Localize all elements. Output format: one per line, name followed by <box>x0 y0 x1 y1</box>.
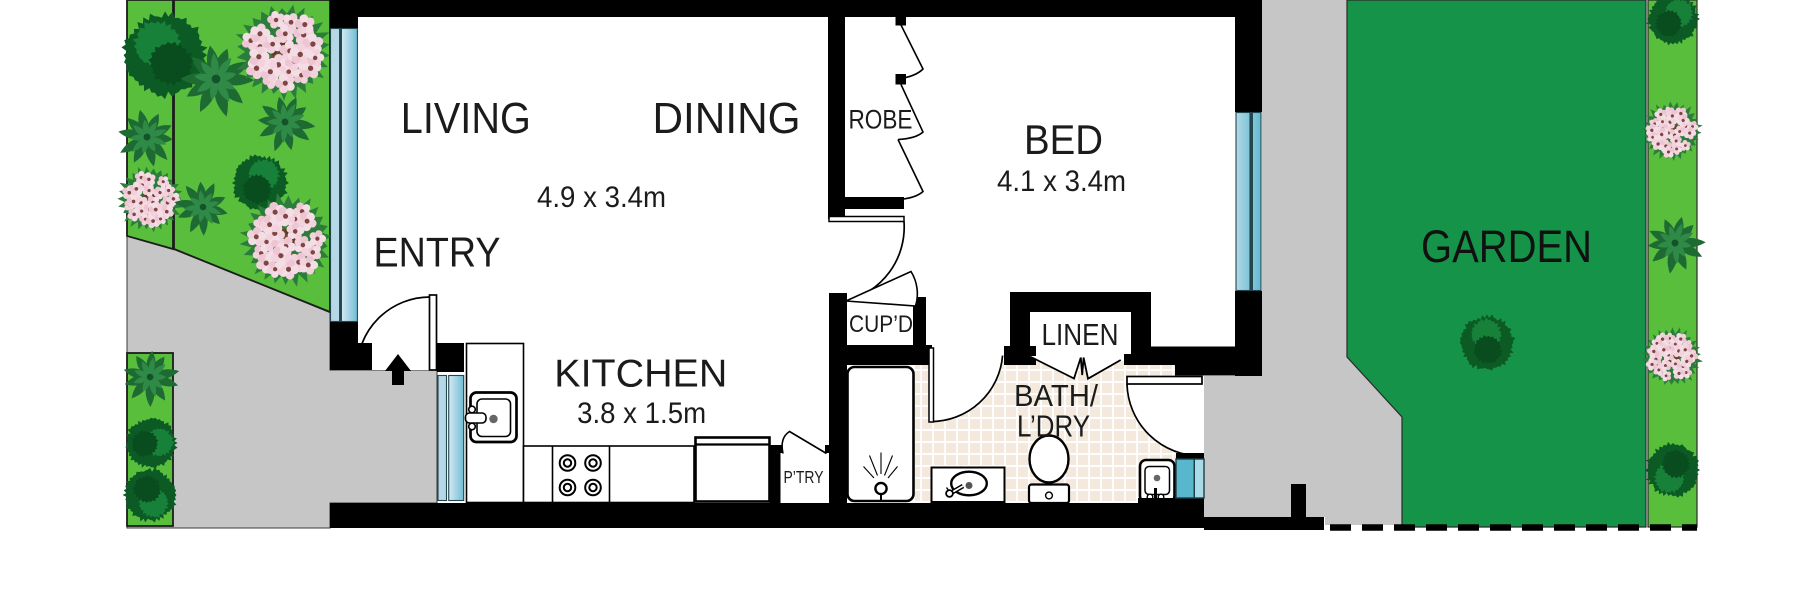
svg-text:KITCHEN: KITCHEN <box>554 353 727 396</box>
svg-text:L’DRY: L’DRY <box>1017 409 1090 443</box>
svg-text:LIVING: LIVING <box>401 94 531 143</box>
svg-text:CUP’D: CUP’D <box>849 311 913 338</box>
svg-text:LINEN: LINEN <box>1042 318 1119 352</box>
svg-text:GARDEN: GARDEN <box>1421 221 1592 272</box>
svg-text:ENTRY: ENTRY <box>374 229 501 276</box>
svg-text:3.8 x 1.5m: 3.8 x 1.5m <box>577 397 706 430</box>
svg-text:4.1 x 3.4m: 4.1 x 3.4m <box>997 165 1126 198</box>
svg-text:P’TRY: P’TRY <box>784 467 824 487</box>
svg-text:4.9 x 3.4m: 4.9 x 3.4m <box>537 181 666 214</box>
svg-text:DINING: DINING <box>653 94 801 143</box>
svg-text:BATH/: BATH/ <box>1014 379 1098 413</box>
svg-text:ROBE: ROBE <box>849 105 913 135</box>
svg-text:BED: BED <box>1024 116 1103 163</box>
